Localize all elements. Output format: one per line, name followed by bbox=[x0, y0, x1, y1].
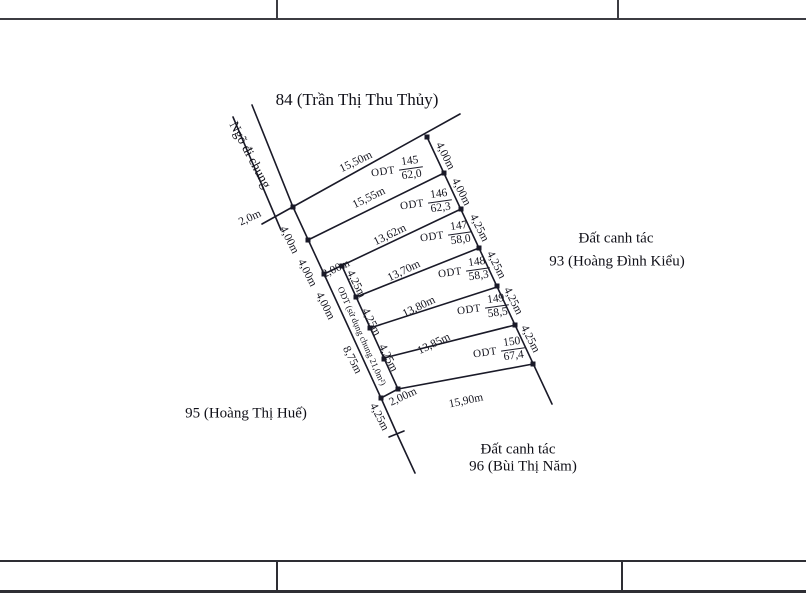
parcel-150-fraction: 15067,4 bbox=[499, 334, 527, 363]
neighbor-bottom-owner: 96 (Bùi Thị Năm) bbox=[469, 459, 577, 476]
neighbor-right-owner: 93 (Hoàng Đình Kiểu) bbox=[549, 254, 684, 271]
parcel-150-bottom-line bbox=[398, 364, 533, 389]
parcel-149-landuse: ODT bbox=[456, 302, 481, 317]
neighbor-bottom-landtype: Đất canh tác bbox=[481, 442, 556, 459]
parcel-147-landuse: ODT bbox=[419, 229, 444, 244]
parcel-145-landuse: ODT bbox=[370, 164, 395, 179]
parcel-146-landuse: ODT bbox=[399, 197, 424, 212]
map-title: 84 (Trần Thị Thu Thủy) bbox=[276, 90, 439, 110]
parcel-147-fraction: 14758,0 bbox=[446, 218, 474, 247]
neighbor-right-landtype: Đất canh tác bbox=[579, 231, 654, 248]
parcel-145-fraction: 14562,0 bbox=[397, 153, 425, 182]
neighbor-left-owner: 95 (Hoàng Thị Huế) bbox=[185, 406, 307, 423]
cadastral-sheet: 84 (Trần Thị Thu Thủy) Đất canh tác 93 (… bbox=[0, 0, 806, 600]
parcel-149-fraction: 14958,5 bbox=[483, 291, 511, 320]
parcel-148-fraction: 14858,3 bbox=[464, 254, 492, 283]
parcel-150-landuse: ODT bbox=[472, 345, 497, 360]
parcel-148-landuse: ODT bbox=[437, 265, 462, 280]
parcel-146-fraction: 14662,3 bbox=[426, 186, 454, 215]
